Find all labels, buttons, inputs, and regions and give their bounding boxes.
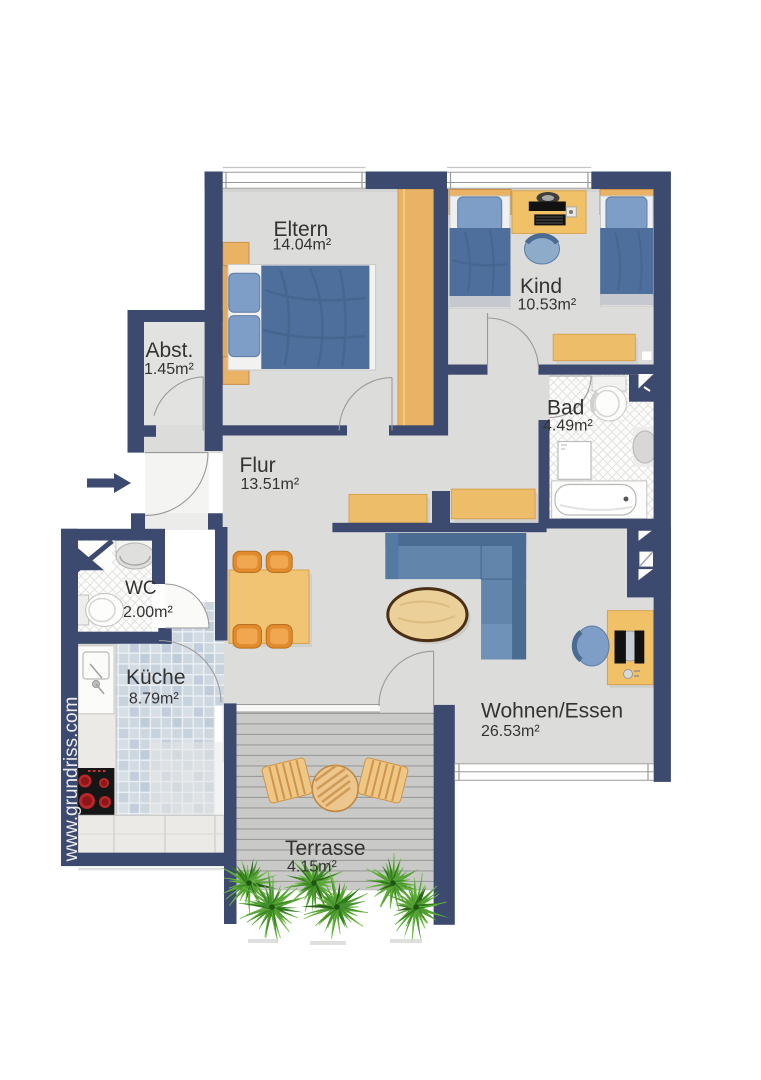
svg-text:10.53m²: 10.53m² [518, 297, 577, 314]
svg-text:Bad: Bad [547, 397, 584, 420]
svg-text:Flur: Flur [240, 454, 276, 477]
svg-text:2.00m²: 2.00m² [123, 604, 173, 621]
svg-text:4.49m²: 4.49m² [543, 418, 593, 435]
svg-text:4.15m²: 4.15m² [287, 859, 337, 876]
svg-text:26.53m²: 26.53m² [481, 723, 540, 740]
svg-text:Küche: Küche [126, 666, 186, 689]
svg-text:Kind: Kind [520, 275, 562, 298]
svg-text:www.grundriss.com: www.grundriss.com [61, 697, 82, 863]
svg-text:WC: WC [125, 578, 157, 599]
svg-text:14.04m²: 14.04m² [273, 237, 332, 254]
svg-text:1.45m²: 1.45m² [144, 361, 194, 378]
svg-text:8.79m²: 8.79m² [129, 691, 179, 708]
svg-text:13.51m²: 13.51m² [241, 476, 300, 493]
svg-text:Abst.: Abst. [146, 339, 194, 362]
svg-text:Wohnen/Essen: Wohnen/Essen [481, 700, 623, 723]
svg-text:Terrasse: Terrasse [285, 837, 366, 860]
